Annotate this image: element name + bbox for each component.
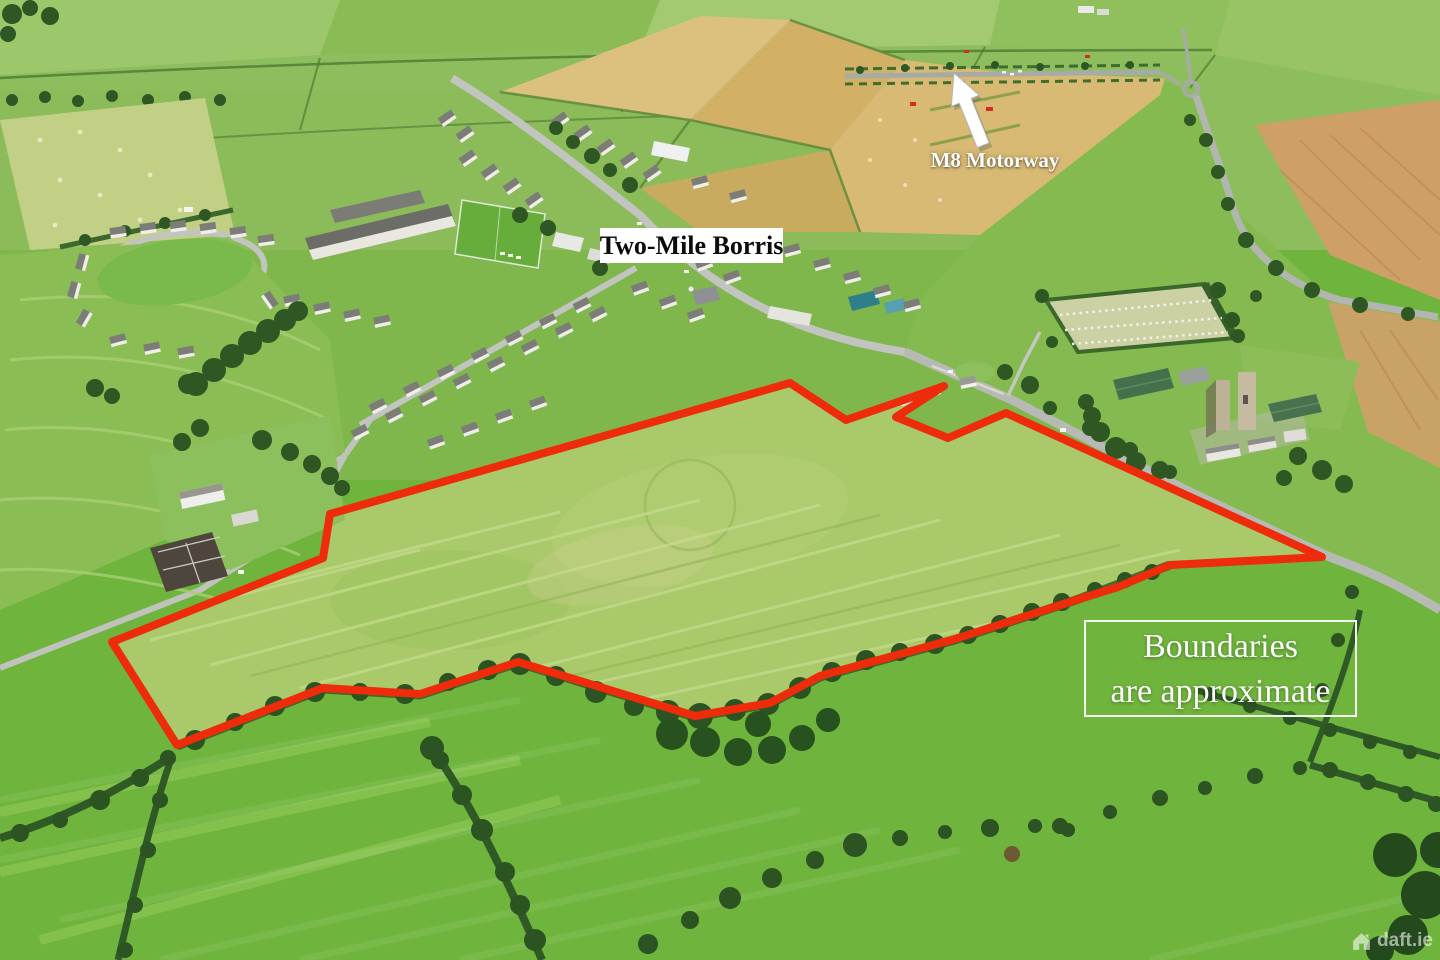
aerial-photo [0,0,1440,960]
daft-house-icon [1351,931,1372,952]
m8-motorway-label-text: M8 Motorway [931,148,1060,172]
boundaries-disclaimer: Boundaries are approximate [1084,620,1357,717]
boundaries-disclaimer-line1: Boundaries [1086,624,1355,669]
town-label-text: Two-Mile Borris [600,231,784,261]
m8-motorway-label: M8 Motorway [905,148,1085,173]
castle-ruin [1206,380,1216,438]
daft-watermark: daft.ie [1351,930,1433,952]
town-label: Two-Mile Borris [600,228,783,263]
daft-watermark-text: daft.ie [1377,930,1433,952]
aerial-listing-screenshot: Two-Mile Borris M8 Motorway Boundaries a… [0,0,1440,960]
boundaries-disclaimer-line2: are approximate [1086,669,1355,714]
